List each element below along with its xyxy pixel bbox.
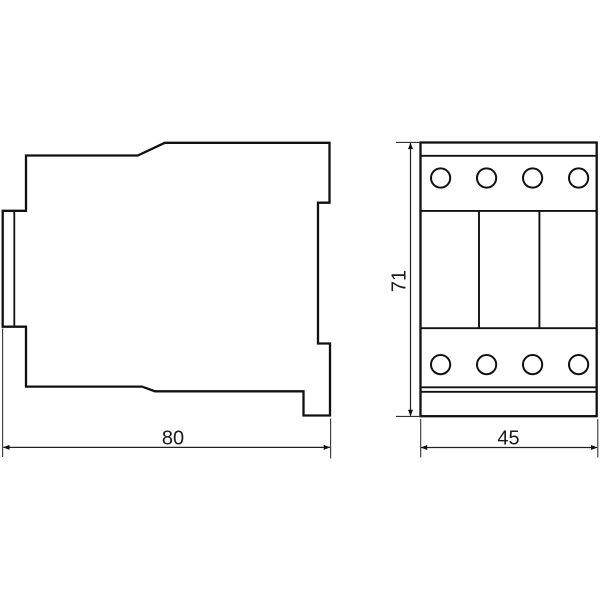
svg-text:45: 45 <box>497 428 519 450</box>
svg-text:80: 80 <box>162 427 184 449</box>
svg-text:71: 71 <box>389 270 411 292</box>
